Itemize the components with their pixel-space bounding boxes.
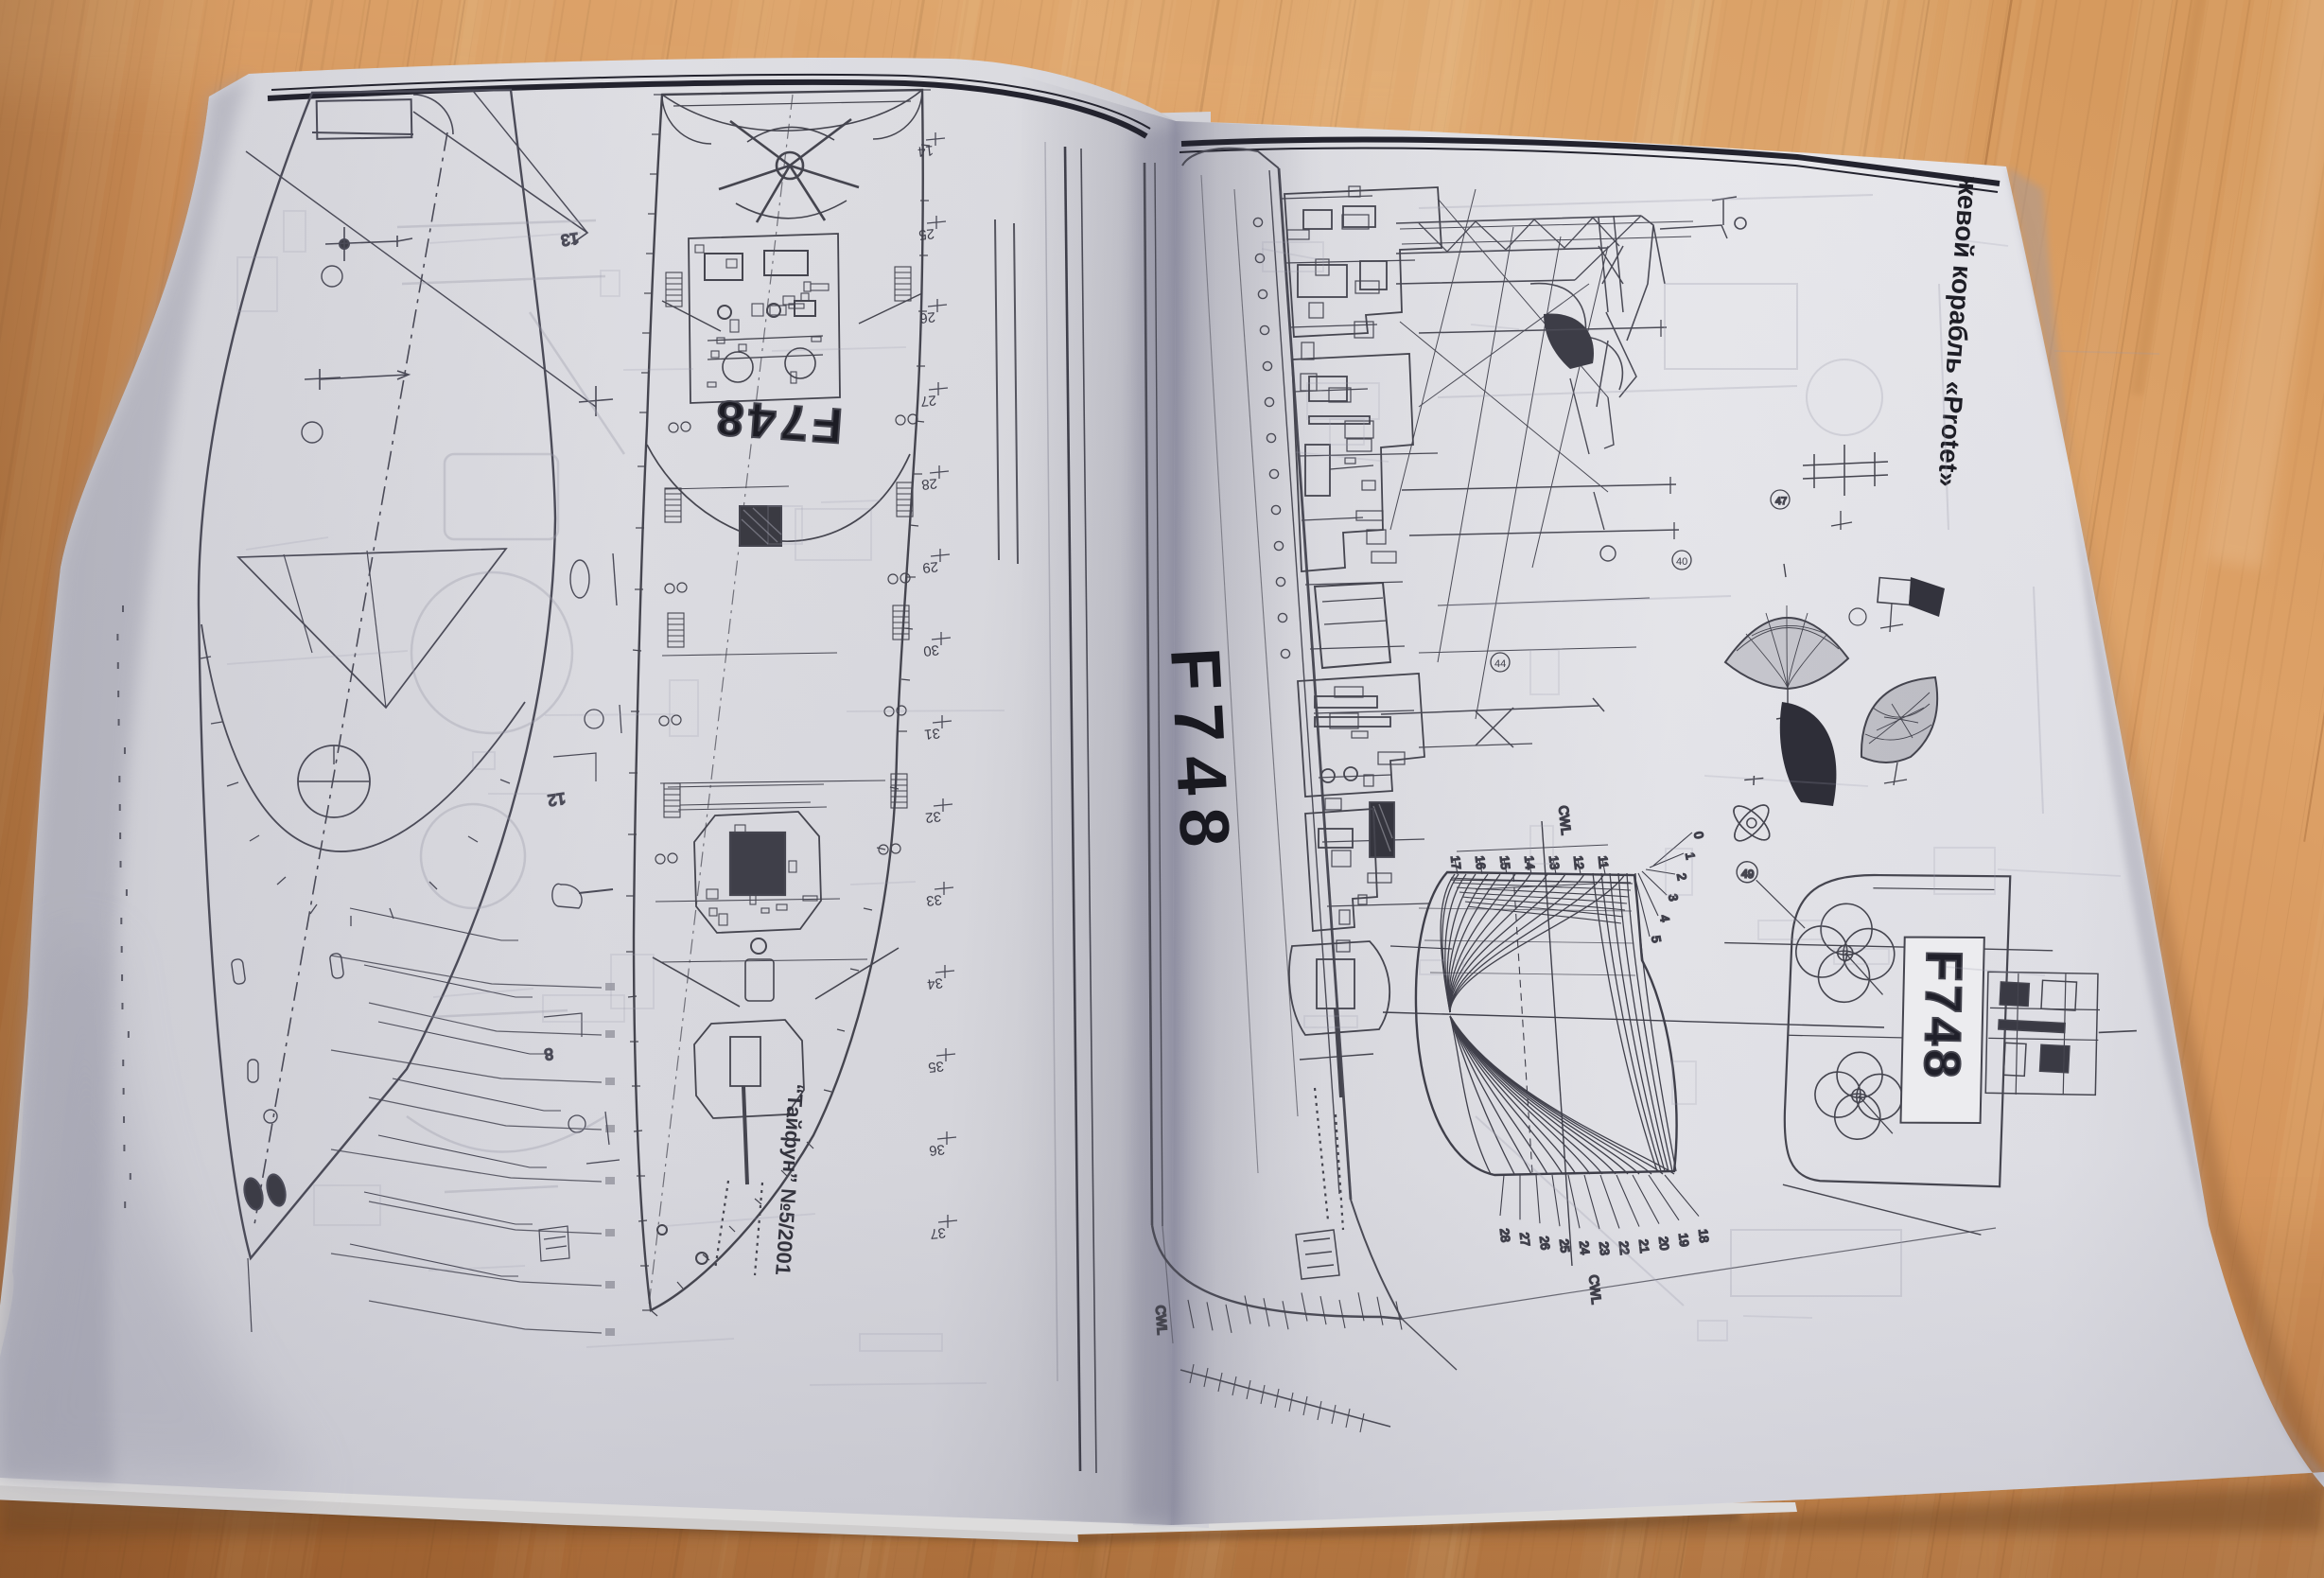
svg-text:27: 27 [919,392,936,410]
svg-text:CWL: CWL [1556,805,1574,836]
svg-text:49: 49 [1741,867,1755,881]
svg-text:F748: F748 [1156,645,1246,862]
svg-text:12: 12 [547,789,567,809]
svg-text:40: 40 [1676,556,1687,568]
svg-text:33: 33 [925,891,942,909]
svg-text:19: 19 [1676,1233,1691,1248]
svg-text:36: 36 [928,1141,945,1159]
svg-text:12: 12 [1571,855,1586,870]
svg-text:31: 31 [923,725,940,743]
svg-text:23: 23 [1597,1241,1612,1256]
svg-text:28: 28 [920,475,937,493]
svg-text:F748: F748 [1913,950,1972,1082]
svg-text:14: 14 [917,142,934,160]
svg-text:15: 15 [1497,855,1512,870]
svg-text:13: 13 [1546,855,1562,870]
svg-text:35: 35 [927,1058,944,1076]
svg-text:21: 21 [1636,1238,1651,1254]
svg-text:22: 22 [1616,1240,1632,1255]
svg-text:30: 30 [922,641,939,659]
svg-text:25: 25 [1557,1238,1572,1254]
svg-text:27: 27 [1517,1232,1532,1247]
svg-text:25: 25 [917,225,935,243]
svg-text:16: 16 [1473,855,1488,870]
svg-text:20: 20 [1656,1236,1671,1251]
svg-text:17: 17 [1448,855,1463,870]
svg-text:F748: F748 [710,389,845,453]
svg-text:34: 34 [926,974,943,992]
svg-text:CWL: CWL [1153,1305,1170,1335]
svg-text:37: 37 [929,1224,946,1242]
svg-text:47: 47 [1775,496,1787,507]
svg-text:18: 18 [1696,1228,1711,1243]
svg-text:28: 28 [1497,1228,1512,1243]
svg-text:26: 26 [918,308,935,326]
svg-text:44: 44 [1494,658,1506,670]
svg-text:CWL: CWL [1586,1274,1604,1306]
svg-text:24: 24 [1577,1240,1592,1255]
svg-text:29: 29 [921,558,938,576]
svg-text:13: 13 [560,229,580,249]
svg-text:11: 11 [1596,855,1611,869]
svg-text:26: 26 [1537,1236,1552,1251]
svg-text:32: 32 [924,808,941,826]
